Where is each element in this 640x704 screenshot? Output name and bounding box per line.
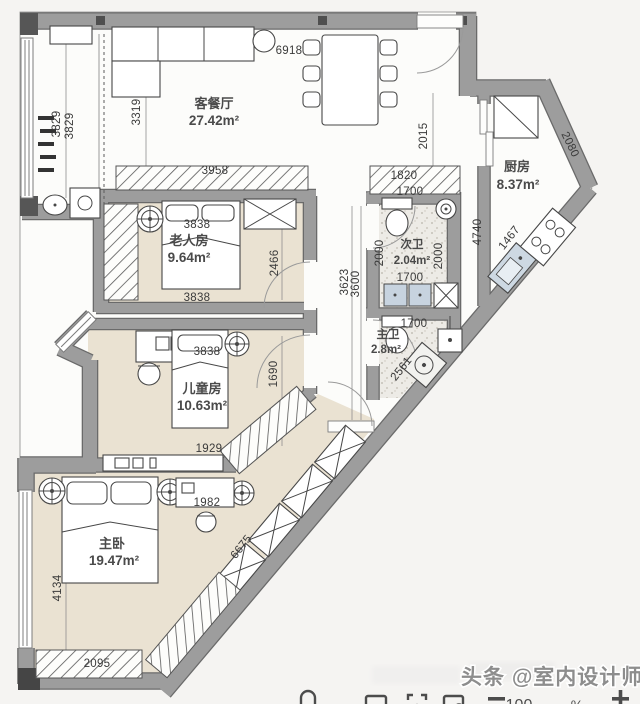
dim-master-bottom: 2095 — [84, 658, 111, 670]
dim-living-depth: 3319 — [131, 99, 143, 126]
living-room-name: 客餐厅 — [194, 96, 233, 111]
dim-balcony-b: 3829 — [64, 113, 76, 140]
floorplan-viewer: 客餐厅 27.42m² 厨房 8.37m² 老人房 9.64m² 儿童房 10.… — [0, 0, 640, 704]
kitchen-name: 厨房 — [504, 159, 530, 174]
master-room-area: 19.47m² — [89, 553, 140, 568]
floorplan-canvas: 客餐厅 27.42m² 厨房 8.37m² 老人房 9.64m² 儿童房 10.… — [0, 0, 640, 704]
bath2-sinks — [384, 284, 431, 306]
elder-ceiling-light — [137, 206, 163, 232]
dim-hall-b: 3600 — [350, 271, 362, 298]
kitchen-area: 8.37m² — [497, 177, 540, 192]
balcony-cabinet — [50, 26, 92, 44]
dim-balcony-a: 3829 — [51, 111, 63, 138]
dim-bath2-top: 1700 — [397, 186, 424, 198]
dim-master-left: 4134 — [52, 574, 64, 601]
watermark-text: 头条 @室内设计师苏哥 — [461, 665, 640, 689]
zoom-out-icon[interactable] — [488, 697, 505, 701]
fridge — [494, 96, 538, 138]
laundry-sink — [43, 195, 67, 215]
master-stool — [196, 512, 216, 532]
master-ceiling-light-1 — [39, 478, 65, 504]
dim-elder-depth: 2466 — [269, 250, 281, 277]
kids-room-area: 10.63m² — [177, 398, 228, 413]
bath2-storage-box — [434, 283, 458, 308]
dim-bath1-top: 1700 — [401, 318, 428, 330]
dim-tv-cabinet: 3958 — [202, 165, 229, 177]
elder-room-area: 9.64m² — [168, 250, 211, 265]
dim-kids-top: 3838 — [194, 346, 221, 358]
kids-ceiling-light — [225, 332, 249, 356]
zoom-level-value: 100 — [506, 697, 533, 704]
kids-room-name: 儿童房 — [181, 381, 221, 396]
kitchen-slide-door — [480, 100, 487, 134]
dim-elder-bottom: 3838 — [184, 292, 211, 304]
washing-machine — [70, 188, 100, 218]
dim-elder-top: 3838 — [184, 219, 211, 231]
kids-bed — [172, 330, 228, 428]
dim-kids-bottom: 1929 — [196, 443, 223, 455]
dim-shoe-cabinet: 1820 — [391, 170, 418, 182]
living-room-area: 27.42m² — [189, 113, 240, 128]
dim-bath2-bottom: 1700 — [397, 272, 424, 284]
kids-chair — [138, 363, 160, 385]
zoom-percent-sign: % — [571, 697, 583, 704]
bath1-name: 主卫 — [377, 327, 400, 341]
dim-master-desk: 1982 — [194, 497, 221, 509]
elder-room-name: 老人房 — [168, 233, 208, 248]
dim-top-entry: 6918 — [276, 45, 303, 57]
dim-kids-depth: 1690 — [268, 361, 280, 388]
master-dresser — [103, 455, 223, 471]
bath1-area: 2.8m² — [371, 344, 401, 356]
kitchen-slide-door2 — [486, 132, 493, 166]
master-room-name: 主卧 — [99, 536, 125, 551]
elder-storage-box — [244, 199, 296, 229]
bath2-area: 2.04m² — [394, 255, 431, 267]
dim-bath2-left: 2000 — [374, 240, 386, 267]
dim-kitchen-left: 4740 — [472, 219, 484, 246]
bath2-name: 次卫 — [401, 237, 424, 251]
smudge-patch-1 — [372, 666, 460, 684]
dim-foyer: 2015 — [418, 123, 430, 150]
side-table — [253, 30, 275, 52]
entry-door-leaf — [417, 15, 463, 28]
elder-wardrobe — [104, 204, 138, 300]
dim-bath2-right: 2000 — [433, 243, 445, 270]
bath2-shower-drain — [436, 199, 456, 219]
